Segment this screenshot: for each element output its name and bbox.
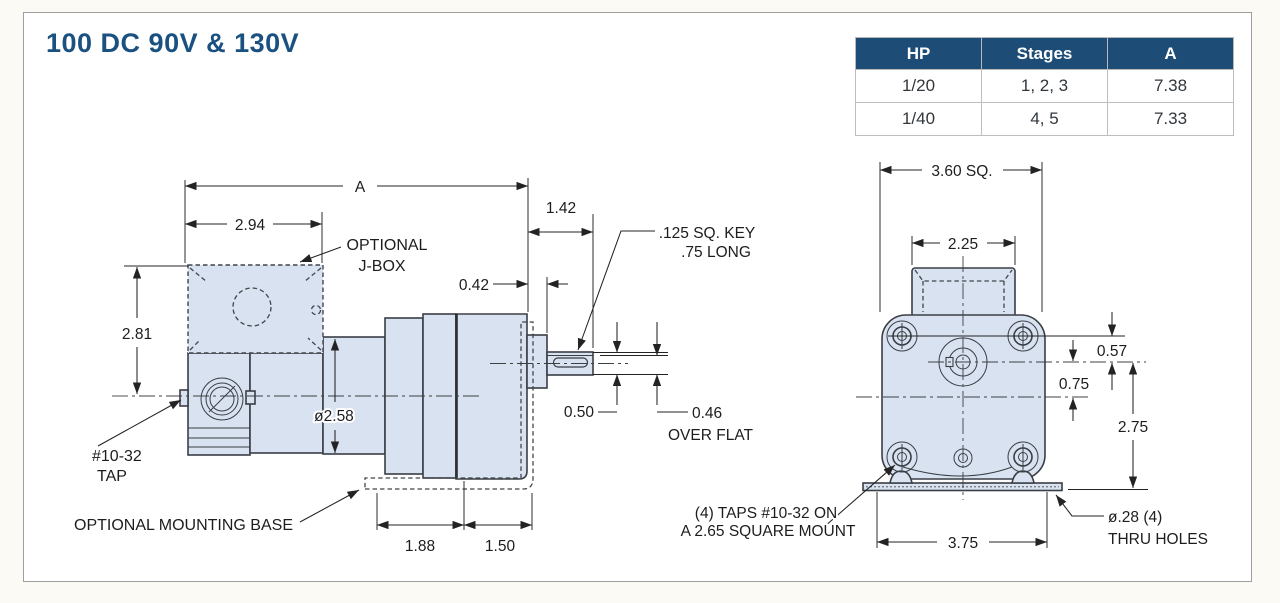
- jbox-leader: [300, 247, 341, 262]
- base-leader: [300, 490, 359, 522]
- front-view-gearmotor: 3.60 SQ. 2.25 0.57 0.75 2.75 3.75 (4) TA…: [681, 162, 1208, 552]
- dim-1-88: 1.88: [405, 538, 435, 555]
- dim-3-75: 3.75: [948, 535, 978, 552]
- motor-rear-cap: [188, 353, 250, 455]
- key-note-line2: .75 LONG: [681, 244, 751, 261]
- jbox-note-line1: OPTIONAL: [347, 237, 428, 254]
- mounting-base-label: OPTIONAL MOUNTING BASE: [74, 517, 293, 534]
- dim-0-75: 0.75: [1059, 376, 1089, 393]
- dim-0-46: 0.46: [692, 405, 722, 422]
- over-flat-label: OVER FLAT: [668, 427, 754, 444]
- dim-2-81: 2.81: [122, 326, 152, 343]
- jbox-note-line2: J-BOX: [358, 258, 405, 275]
- dim-1-50: 1.50: [485, 538, 516, 555]
- dim-2-94: 2.94: [235, 217, 266, 234]
- taps-note-line2: A 2.65 SQUARE MOUNT: [681, 523, 856, 540]
- drawing-sheet-page: { "page": { "title": "100 DC 90V & 130V"…: [0, 0, 1280, 603]
- dim-0-50: 0.50: [564, 404, 595, 421]
- dim-1-42: 1.42: [546, 200, 576, 217]
- side-view-gearmotor: A 2.94 1.42 0.42 2.81 ø2.58 0.50 0.46 OV…: [74, 178, 755, 555]
- dim-2-75: 2.75: [1118, 419, 1148, 436]
- thru-holes-leader: [1056, 495, 1104, 516]
- gearbox-housing: [456, 314, 527, 479]
- dim-a: A: [355, 179, 366, 196]
- motor-body-top: [912, 268, 1015, 318]
- optional-jbox-outline: [188, 265, 323, 353]
- dim-2-25: 2.25: [948, 236, 978, 253]
- motor-mid-section: [250, 353, 323, 453]
- holes-note-line1: ø.28 (4): [1108, 509, 1162, 526]
- dim-0-42: 0.42: [459, 277, 489, 294]
- dim-dia-2-58: ø2.58: [314, 408, 354, 425]
- tap-note-line1: #10-32: [92, 448, 142, 465]
- technical-drawing: A 2.94 1.42 0.42 2.81 ø2.58 0.50 0.46 OV…: [0, 0, 1280, 603]
- motor-cylinder: [323, 337, 385, 454]
- output-boss: [527, 335, 547, 388]
- key-note-line1: .125 SQ. KEY: [659, 225, 756, 242]
- holes-note-line2: THRU HOLES: [1108, 531, 1208, 548]
- dim-0-57: 0.57: [1097, 343, 1127, 360]
- tap-leader: [98, 400, 181, 446]
- shaft-keyway: [554, 358, 588, 367]
- housing-notch: [246, 391, 255, 404]
- tap-note-line2: TAP: [97, 468, 127, 485]
- dim-3-60-sq: 3.60 SQ.: [931, 163, 992, 180]
- taps-note-line1: (4) TAPS #10-32 ON: [695, 505, 837, 522]
- tap-boss: [180, 390, 188, 406]
